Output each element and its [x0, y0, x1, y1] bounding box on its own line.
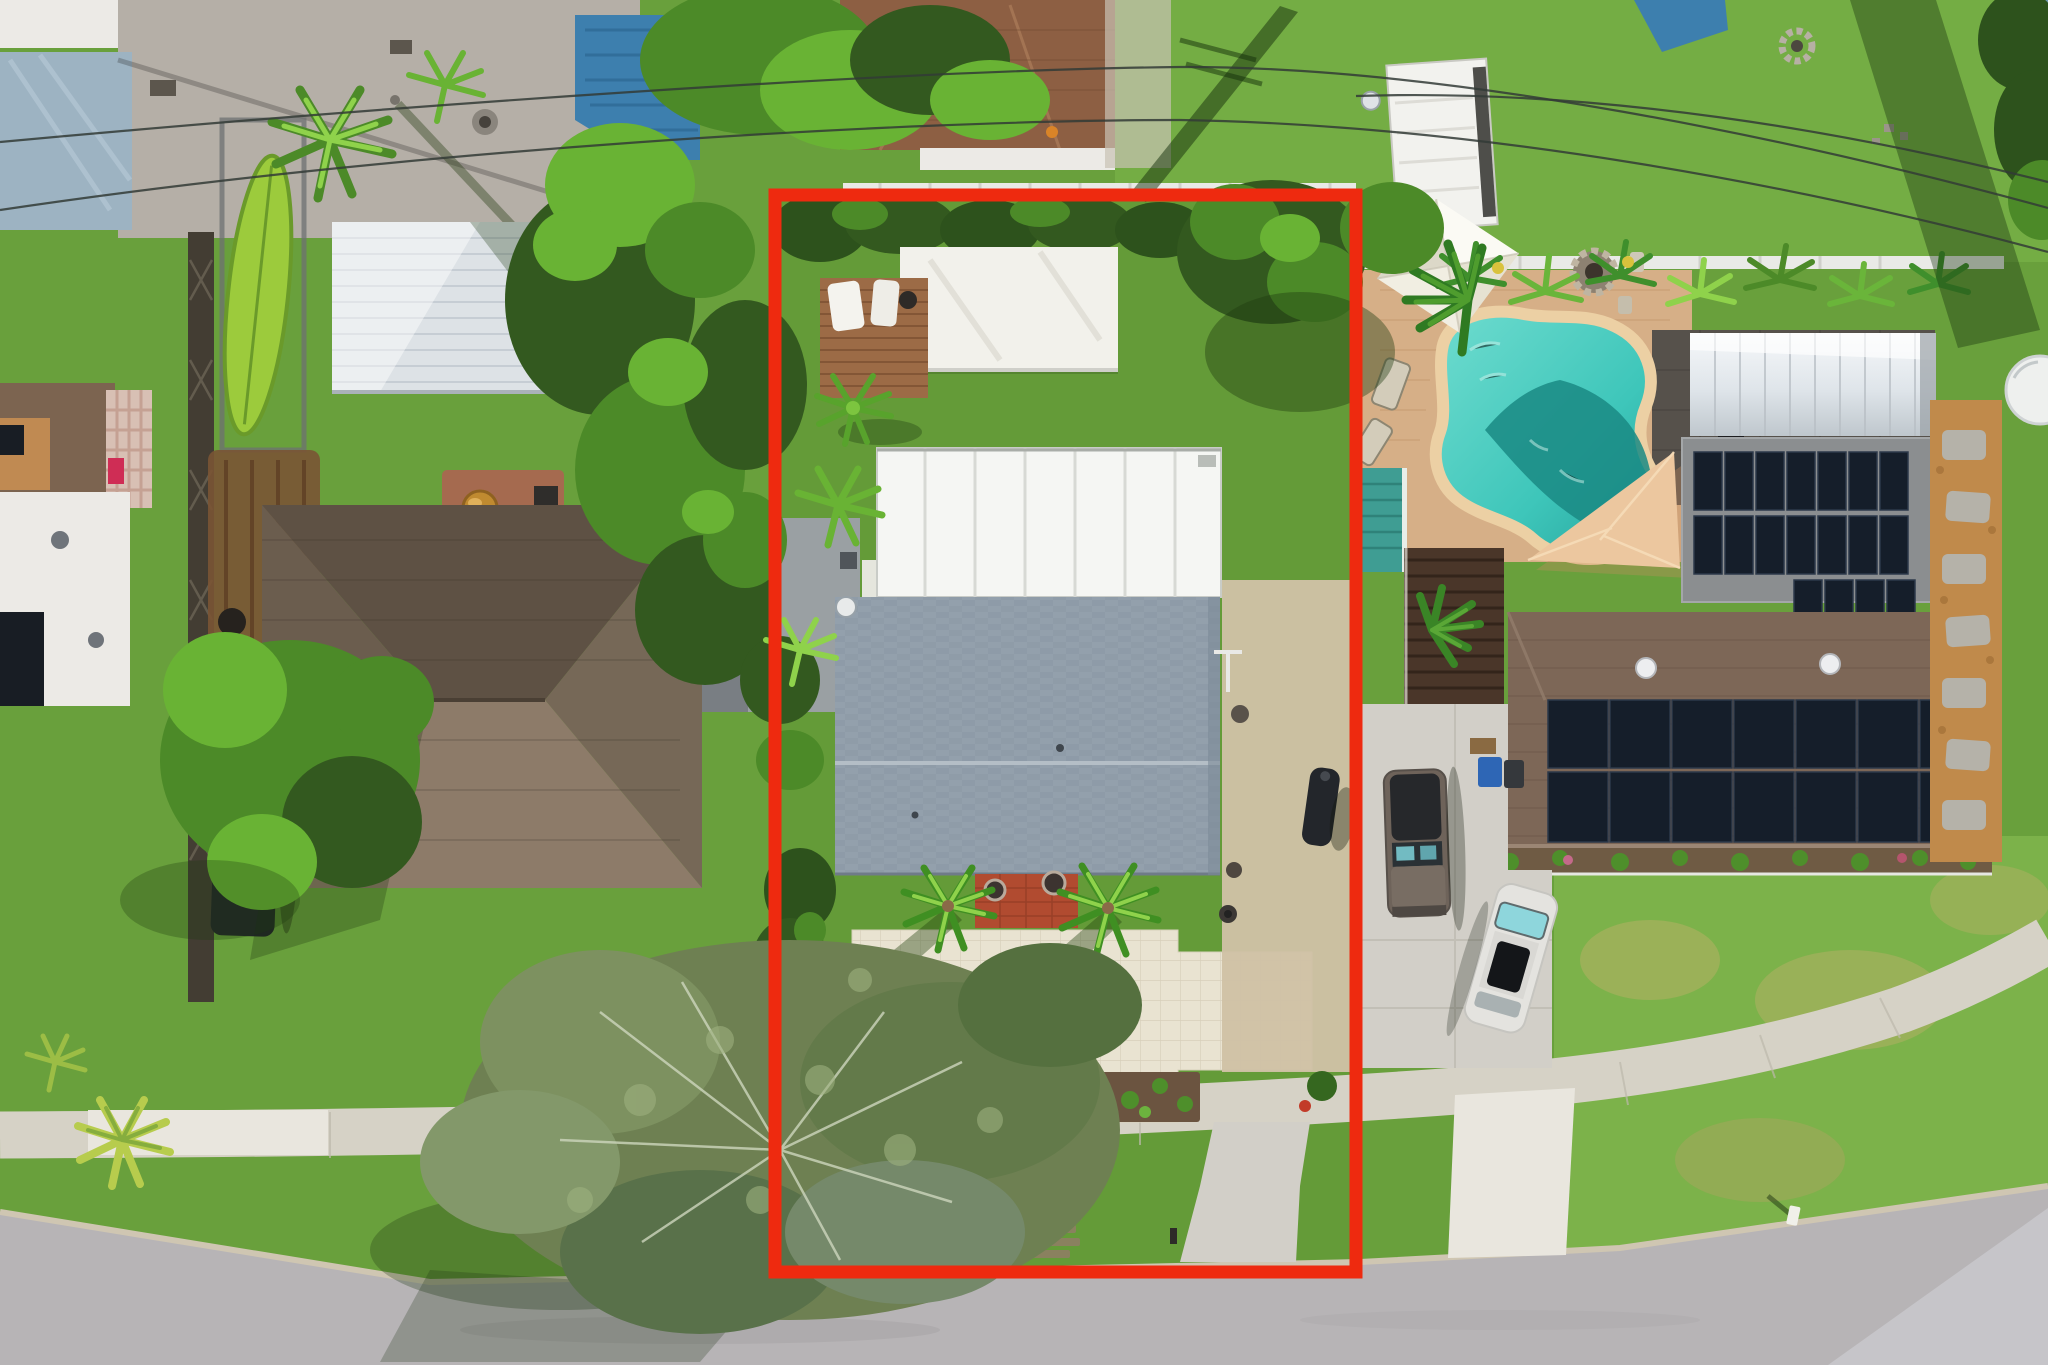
blue-bin: [1478, 757, 1502, 787]
gravel-side-yard: [1214, 580, 1361, 1112]
red-mat: [108, 458, 124, 484]
flat-roof-solar: [1682, 438, 1934, 632]
tree-shadow: [1205, 292, 1395, 412]
ac-unit: [840, 552, 857, 569]
carport: [877, 448, 1221, 597]
checker-patio: [106, 390, 152, 508]
aerial-photo-canvas: [0, 0, 2048, 1365]
hose-reel: [1231, 705, 1249, 723]
small-bush: [1307, 1071, 1337, 1101]
satellite-dish: [836, 597, 856, 617]
pink-flowers: [1563, 855, 1573, 865]
dark-post: [1170, 1228, 1177, 1244]
right-driveway-apron: [1448, 1088, 1575, 1258]
gray-shingle-roof: [835, 597, 1220, 875]
roof-vent: [1636, 658, 1656, 678]
left-edge-solar-panels: [0, 612, 44, 706]
main-house: [835, 597, 1220, 875]
brown-box: [1470, 738, 1496, 754]
lounge-chair: [870, 279, 900, 327]
satellite-dish: [1361, 91, 1380, 110]
porch-light-glow: [1046, 126, 1058, 138]
gravel-side-strip: [1105, 0, 1171, 168]
mobile-home-roof: [0, 0, 118, 48]
dark-bin: [1504, 760, 1524, 788]
mulch-path: [1930, 400, 2002, 862]
suv: [1383, 766, 1468, 933]
lounge-chair: [827, 280, 865, 332]
windshield-shade: [1396, 846, 1414, 861]
grill-on-deck: [899, 291, 917, 309]
aerial-photo: [0, 0, 2048, 1365]
front-roof-solar: [1508, 612, 1992, 848]
silver-metal-roof: [1690, 333, 1936, 436]
roof-vent: [1820, 654, 1840, 674]
brick-porch: [975, 872, 1078, 928]
red-pot: [1299, 1100, 1311, 1112]
